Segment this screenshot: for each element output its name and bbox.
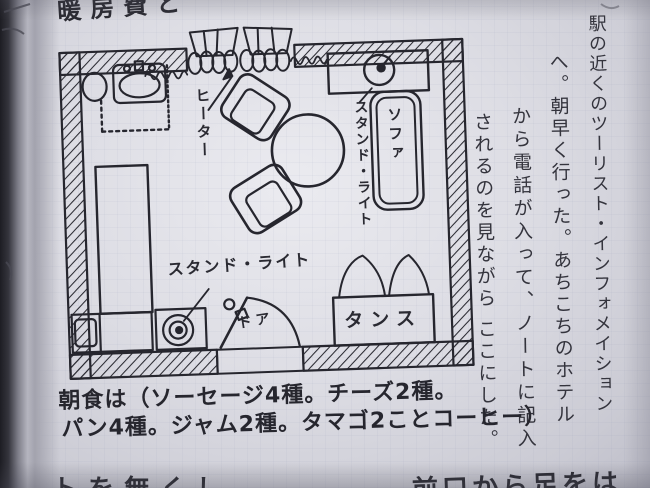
photo-shadow-top xyxy=(0,0,650,20)
door-drawing xyxy=(215,296,304,374)
door-threshold xyxy=(217,347,304,374)
photo-shadow-bottom xyxy=(0,462,650,488)
bottom-wall-left xyxy=(70,350,218,379)
window-curtains xyxy=(187,26,293,74)
tansu-door-swing-right xyxy=(388,254,429,295)
heater-label: ヒーター xyxy=(194,87,213,160)
armchair-bottom-drawing xyxy=(226,161,304,237)
sofa-label: ソファ xyxy=(386,106,404,164)
bathroom-partition-dashed xyxy=(100,65,169,131)
tansu-door-swing-left xyxy=(338,255,385,298)
tansu-label: タンス xyxy=(344,308,422,331)
curtain-rings xyxy=(188,49,290,75)
toilet-drawing xyxy=(82,72,107,101)
bed-drawing xyxy=(95,165,152,314)
photo-shadow-right xyxy=(624,0,650,488)
door-knob-icon xyxy=(224,299,234,309)
stand-light-top-label: スタンド・ライト xyxy=(352,99,372,227)
round-table-drawing xyxy=(271,113,345,187)
notebook-page-photo: ヒーター スタンド・ライト ソファ タンス スタンド・ライト ドア 駅の近くのツ… xyxy=(0,0,650,488)
right-wall xyxy=(442,39,473,365)
stand-light-bottom-drawing xyxy=(155,289,211,350)
bottom-wall-right xyxy=(303,341,474,371)
